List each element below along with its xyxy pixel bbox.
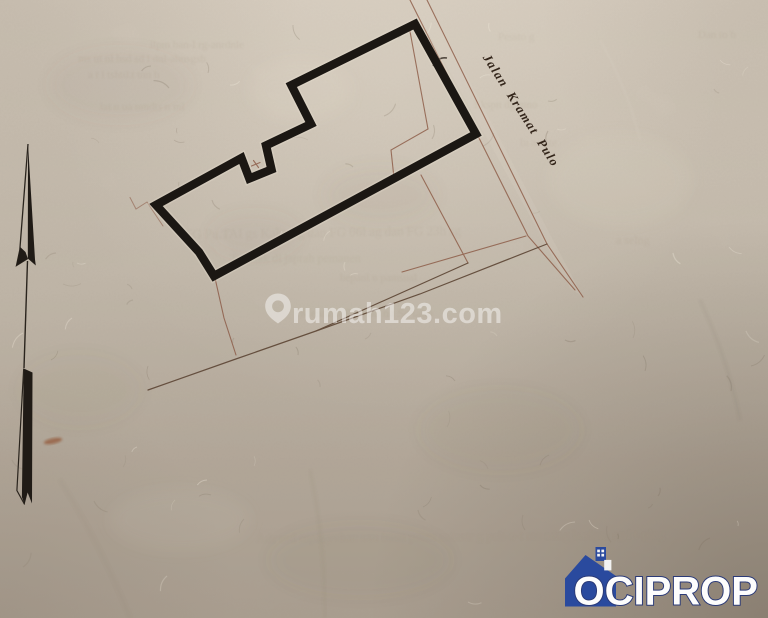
svg-text:Pessto g: Pessto g <box>498 31 535 43</box>
svg-text:a t l tshtd.t tnn b: a t l tshtd.t tnn b <box>88 69 160 81</box>
svg-text:a selng: a selng <box>616 233 650 247</box>
svg-text:ilpm ban-l rg-anrdnle: ilpm ban-l rg-anrdnle <box>150 39 244 51</box>
svg-text:ms ut nl bsd sd l dnl-ahnsgsb: ms ut nl bsd sd l dnl-ahnsgsb <box>78 53 206 65</box>
svg-text:rumah123.com: rumah123.com <box>292 298 503 330</box>
svg-text:lat n ua nmdts n ml: lat n ua nmdts n ml <box>100 101 185 113</box>
svg-text:Dan to b: Dan to b <box>698 29 736 41</box>
svg-text:OCIPROP: OCIPROP <box>574 570 758 614</box>
svg-text:bepanl n pamsual: bepanl n pamsual <box>340 272 417 284</box>
